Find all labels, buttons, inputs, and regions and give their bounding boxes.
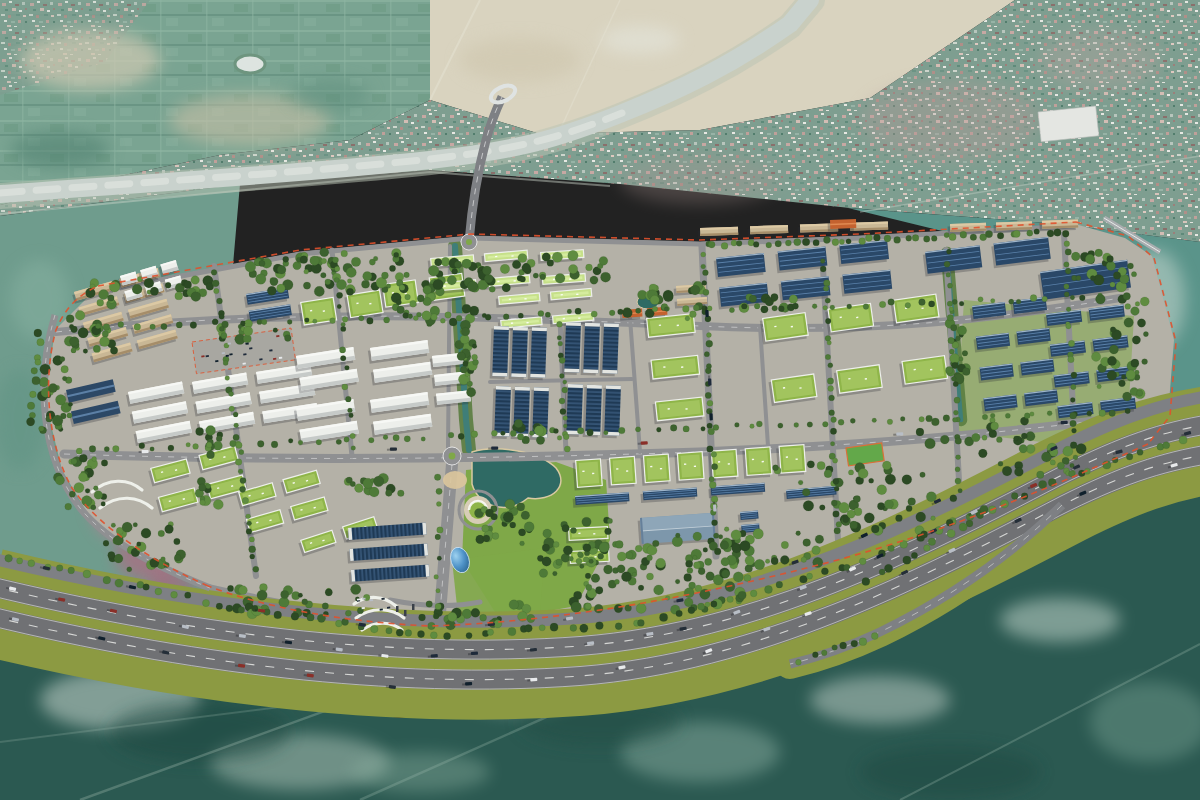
tree	[690, 311, 697, 318]
green-roof-inner	[647, 457, 667, 480]
tree	[796, 659, 802, 665]
tree	[310, 256, 320, 266]
rooftop-unit	[495, 256, 497, 258]
tree	[947, 314, 953, 320]
tree	[494, 620, 502, 628]
tree	[238, 607, 245, 614]
tree	[953, 381, 958, 386]
tree	[430, 632, 437, 639]
tree	[1137, 390, 1143, 396]
tree	[778, 423, 783, 428]
rooftop-unit	[576, 293, 578, 295]
tree	[707, 423, 713, 429]
car	[142, 450, 149, 453]
car	[705, 310, 708, 317]
tree	[383, 435, 388, 440]
tree	[570, 625, 577, 632]
tree	[1014, 467, 1023, 476]
tree	[1076, 275, 1081, 280]
tree	[638, 585, 644, 591]
tree	[843, 516, 849, 522]
tree	[277, 284, 286, 293]
tree	[206, 483, 211, 488]
tree	[472, 354, 478, 360]
tree	[174, 554, 181, 561]
tree	[955, 467, 960, 472]
tree	[589, 559, 594, 564]
tree	[688, 607, 695, 614]
tree	[68, 402, 72, 406]
tree	[529, 431, 534, 436]
tree	[448, 432, 454, 438]
tree	[350, 481, 355, 486]
tree	[214, 288, 220, 294]
tree	[321, 258, 327, 264]
tree	[30, 391, 37, 398]
tree	[207, 451, 215, 459]
tree	[825, 354, 830, 359]
tree	[596, 622, 604, 630]
tree	[461, 327, 469, 335]
tree	[95, 323, 101, 329]
tree	[48, 383, 57, 392]
solar-row-building	[583, 323, 600, 373]
tree	[335, 620, 342, 627]
tree	[76, 448, 82, 454]
tree	[646, 573, 653, 580]
tree	[598, 553, 604, 559]
gable-cap	[585, 323, 600, 327]
tree	[52, 415, 63, 426]
tree	[807, 573, 813, 579]
tree	[1109, 345, 1118, 354]
tree	[711, 601, 717, 607]
tree	[137, 542, 142, 547]
tree	[632, 572, 637, 577]
gable-cap	[583, 369, 598, 373]
tree	[533, 273, 538, 278]
tree	[950, 495, 957, 502]
tree	[103, 324, 110, 331]
tree	[553, 429, 558, 434]
tree	[858, 469, 868, 479]
tree	[683, 426, 689, 432]
tree	[1125, 408, 1130, 413]
gable-cap	[513, 327, 528, 331]
tree	[336, 439, 341, 444]
tree	[991, 299, 995, 303]
tree	[785, 240, 791, 246]
tree	[831, 417, 837, 423]
tree	[196, 427, 204, 435]
tree	[236, 442, 243, 449]
tree	[184, 281, 192, 289]
orange-row-top	[828, 219, 857, 231]
tree	[111, 523, 116, 528]
tree	[1097, 384, 1101, 388]
tree	[99, 289, 109, 299]
tree	[796, 531, 801, 536]
tree	[703, 289, 709, 295]
tree	[394, 252, 399, 257]
tree	[501, 431, 506, 436]
tree	[211, 269, 217, 275]
tree	[577, 427, 584, 434]
tree	[736, 240, 742, 246]
tree	[518, 529, 525, 536]
tree	[1073, 455, 1078, 460]
tree	[733, 572, 743, 582]
car	[713, 505, 716, 512]
tree	[539, 625, 545, 631]
aerial-render-industrial-park	[0, 0, 1200, 800]
tree	[557, 435, 562, 440]
rooftop-unit	[497, 281, 499, 283]
tree	[421, 437, 425, 441]
tree	[540, 274, 546, 280]
tree	[931, 418, 939, 426]
tree	[216, 436, 222, 442]
tree	[585, 573, 591, 579]
tree	[471, 431, 478, 438]
tree	[165, 282, 171, 288]
tree	[229, 406, 235, 412]
tree	[79, 454, 87, 462]
tree	[62, 376, 67, 381]
tree	[185, 592, 191, 598]
tree	[706, 340, 713, 347]
tree	[369, 487, 379, 497]
tree	[912, 235, 919, 242]
tree	[590, 276, 598, 284]
tree	[1068, 356, 1074, 362]
tree	[127, 567, 132, 572]
tree	[485, 314, 491, 320]
rooftop-unit	[786, 456, 788, 458]
tree	[911, 552, 917, 558]
tree	[150, 447, 154, 451]
tree	[305, 318, 310, 323]
tree	[594, 604, 603, 613]
tree	[261, 319, 267, 325]
tree	[863, 304, 869, 310]
tree	[139, 443, 145, 449]
tree	[168, 445, 174, 451]
gable-cap	[602, 370, 617, 374]
tree	[750, 590, 757, 597]
tree	[585, 603, 591, 609]
tree	[359, 316, 364, 321]
tree	[931, 516, 936, 521]
tree	[1070, 398, 1075, 403]
tree	[212, 319, 218, 325]
tree	[695, 585, 702, 592]
car	[896, 432, 903, 435]
tree	[812, 546, 821, 555]
tree	[487, 629, 493, 635]
tree	[114, 554, 123, 563]
tree	[212, 280, 219, 287]
tree	[39, 377, 49, 387]
tree	[423, 286, 432, 295]
tree	[456, 315, 462, 321]
tree	[702, 270, 708, 276]
tree	[559, 357, 565, 363]
tree	[69, 337, 79, 347]
tree	[711, 451, 717, 457]
car	[431, 654, 438, 658]
tree	[234, 423, 239, 428]
tree	[242, 497, 249, 504]
tree	[155, 588, 162, 595]
rooftop-unit	[561, 294, 563, 296]
tree	[1064, 241, 1070, 247]
rooftop-unit	[663, 366, 665, 368]
tree	[435, 534, 441, 540]
tree	[766, 242, 772, 248]
tree	[1021, 433, 1027, 439]
tree	[69, 491, 75, 497]
tree	[56, 565, 63, 572]
rooftop-unit	[762, 461, 764, 463]
tree	[345, 365, 350, 370]
tree	[749, 295, 756, 302]
tree	[675, 533, 680, 538]
tree	[27, 402, 35, 410]
gable-cap	[568, 384, 583, 388]
tree	[436, 488, 442, 494]
tree	[884, 235, 891, 242]
tree	[903, 556, 911, 564]
tree	[1016, 299, 1021, 304]
tree	[741, 303, 747, 309]
tree	[756, 421, 762, 427]
tree	[563, 416, 568, 421]
tree	[761, 306, 768, 313]
tree	[778, 306, 784, 312]
rooftop-unit	[684, 463, 686, 465]
tree	[864, 513, 874, 523]
tree	[664, 307, 669, 312]
tree	[564, 446, 570, 452]
tree	[563, 380, 567, 384]
terrain-patch	[600, 26, 680, 54]
tree	[150, 324, 156, 330]
car	[530, 648, 537, 652]
rooftop-unit	[685, 408, 687, 410]
tree	[563, 434, 569, 440]
tree	[734, 423, 739, 428]
tree	[1070, 295, 1075, 300]
parked-car	[380, 609, 383, 611]
tree	[1126, 453, 1133, 460]
tree	[363, 594, 370, 601]
tree	[721, 557, 730, 566]
tree	[471, 608, 480, 617]
tree	[256, 274, 266, 284]
tree	[74, 482, 84, 492]
tree	[830, 441, 834, 445]
tree	[605, 528, 612, 535]
tree	[803, 500, 814, 511]
tree	[191, 276, 200, 285]
tree	[817, 462, 825, 470]
tree	[473, 359, 479, 365]
tree	[693, 305, 699, 311]
tree	[191, 292, 201, 302]
tree	[216, 603, 223, 610]
tree	[345, 610, 351, 616]
tree	[825, 335, 831, 341]
tree	[776, 581, 783, 588]
tree	[55, 476, 64, 485]
tree	[954, 397, 960, 403]
tree	[472, 344, 477, 349]
tree	[78, 328, 88, 338]
parked-car	[381, 598, 384, 600]
tree	[161, 323, 167, 329]
tree	[239, 586, 248, 595]
rooftop-unit	[752, 459, 754, 461]
tree	[454, 261, 461, 268]
tree	[618, 309, 624, 315]
tree	[617, 565, 625, 573]
tree	[916, 428, 924, 436]
tree	[345, 396, 351, 402]
gable-cap	[494, 326, 509, 330]
tree	[1030, 412, 1034, 416]
tree	[482, 266, 491, 275]
tree	[559, 373, 564, 378]
tree	[225, 376, 230, 381]
tree	[621, 572, 631, 582]
tree	[404, 272, 410, 278]
tree	[896, 515, 903, 522]
tree	[342, 316, 348, 322]
tree	[1109, 410, 1115, 416]
rooftop-unit	[526, 322, 528, 324]
rooftop-unit	[578, 533, 580, 535]
tree	[452, 268, 458, 274]
tree	[820, 259, 825, 264]
tree	[832, 239, 839, 246]
tree	[943, 415, 950, 422]
tree	[560, 408, 566, 414]
tree	[428, 265, 439, 276]
tree	[330, 318, 336, 324]
parked-car	[362, 607, 365, 609]
tree	[830, 428, 836, 434]
tree	[824, 470, 832, 478]
tree	[200, 500, 206, 506]
tree	[158, 530, 165, 537]
tree	[1002, 466, 1012, 476]
green-roof-inner	[714, 452, 734, 475]
roundabout-island	[449, 453, 456, 460]
tree	[850, 521, 858, 529]
tree	[1123, 392, 1132, 401]
tree	[287, 319, 292, 324]
tree	[850, 418, 855, 423]
tree	[957, 326, 966, 335]
tree	[466, 632, 472, 638]
tree	[802, 238, 809, 245]
tree	[542, 544, 549, 551]
tree	[419, 614, 426, 621]
tree	[721, 570, 729, 578]
tree	[17, 558, 23, 564]
roundabout-island	[466, 239, 472, 245]
tree	[871, 633, 878, 640]
rooftop-unit	[553, 279, 555, 281]
tree	[524, 522, 534, 532]
tree	[397, 306, 405, 314]
tree	[684, 574, 692, 582]
tree	[583, 544, 591, 552]
tree	[1034, 229, 1040, 235]
tree	[103, 540, 109, 546]
tree	[821, 568, 828, 575]
tree	[563, 424, 567, 428]
tree	[213, 441, 222, 450]
tree	[882, 461, 891, 470]
tree	[1047, 230, 1054, 237]
tree	[705, 368, 711, 374]
tree	[1131, 272, 1136, 277]
tree	[60, 356, 65, 361]
car	[709, 413, 712, 420]
solar-row-building	[530, 327, 547, 377]
tree	[807, 422, 813, 428]
terrain-patch	[810, 676, 950, 724]
tree	[952, 417, 957, 422]
tree	[571, 528, 577, 534]
tree	[408, 314, 413, 319]
tree	[75, 311, 85, 321]
tree	[652, 540, 659, 547]
tree	[1095, 249, 1103, 257]
tree	[771, 557, 778, 564]
tree	[351, 257, 360, 266]
tree	[83, 349, 88, 354]
tree	[836, 521, 842, 527]
tree	[202, 599, 209, 606]
tree	[108, 295, 115, 302]
tree	[103, 576, 111, 584]
tree	[949, 349, 954, 354]
tree	[190, 322, 197, 329]
tree	[687, 567, 693, 573]
gable-cap	[532, 327, 547, 331]
tree	[754, 303, 760, 309]
green-roof-inner	[782, 447, 802, 470]
rooftop-unit	[718, 461, 720, 463]
tree	[543, 529, 552, 538]
tree	[227, 585, 233, 591]
tree	[143, 584, 150, 591]
tree	[1050, 460, 1055, 465]
tree	[1071, 252, 1080, 261]
tree	[920, 472, 925, 477]
tree	[219, 326, 224, 331]
tree	[271, 441, 278, 448]
tree	[663, 292, 673, 302]
tree	[91, 505, 96, 510]
tree	[591, 574, 600, 583]
tree	[813, 239, 819, 245]
tree	[1064, 284, 1069, 289]
gate-pylon	[412, 604, 415, 610]
